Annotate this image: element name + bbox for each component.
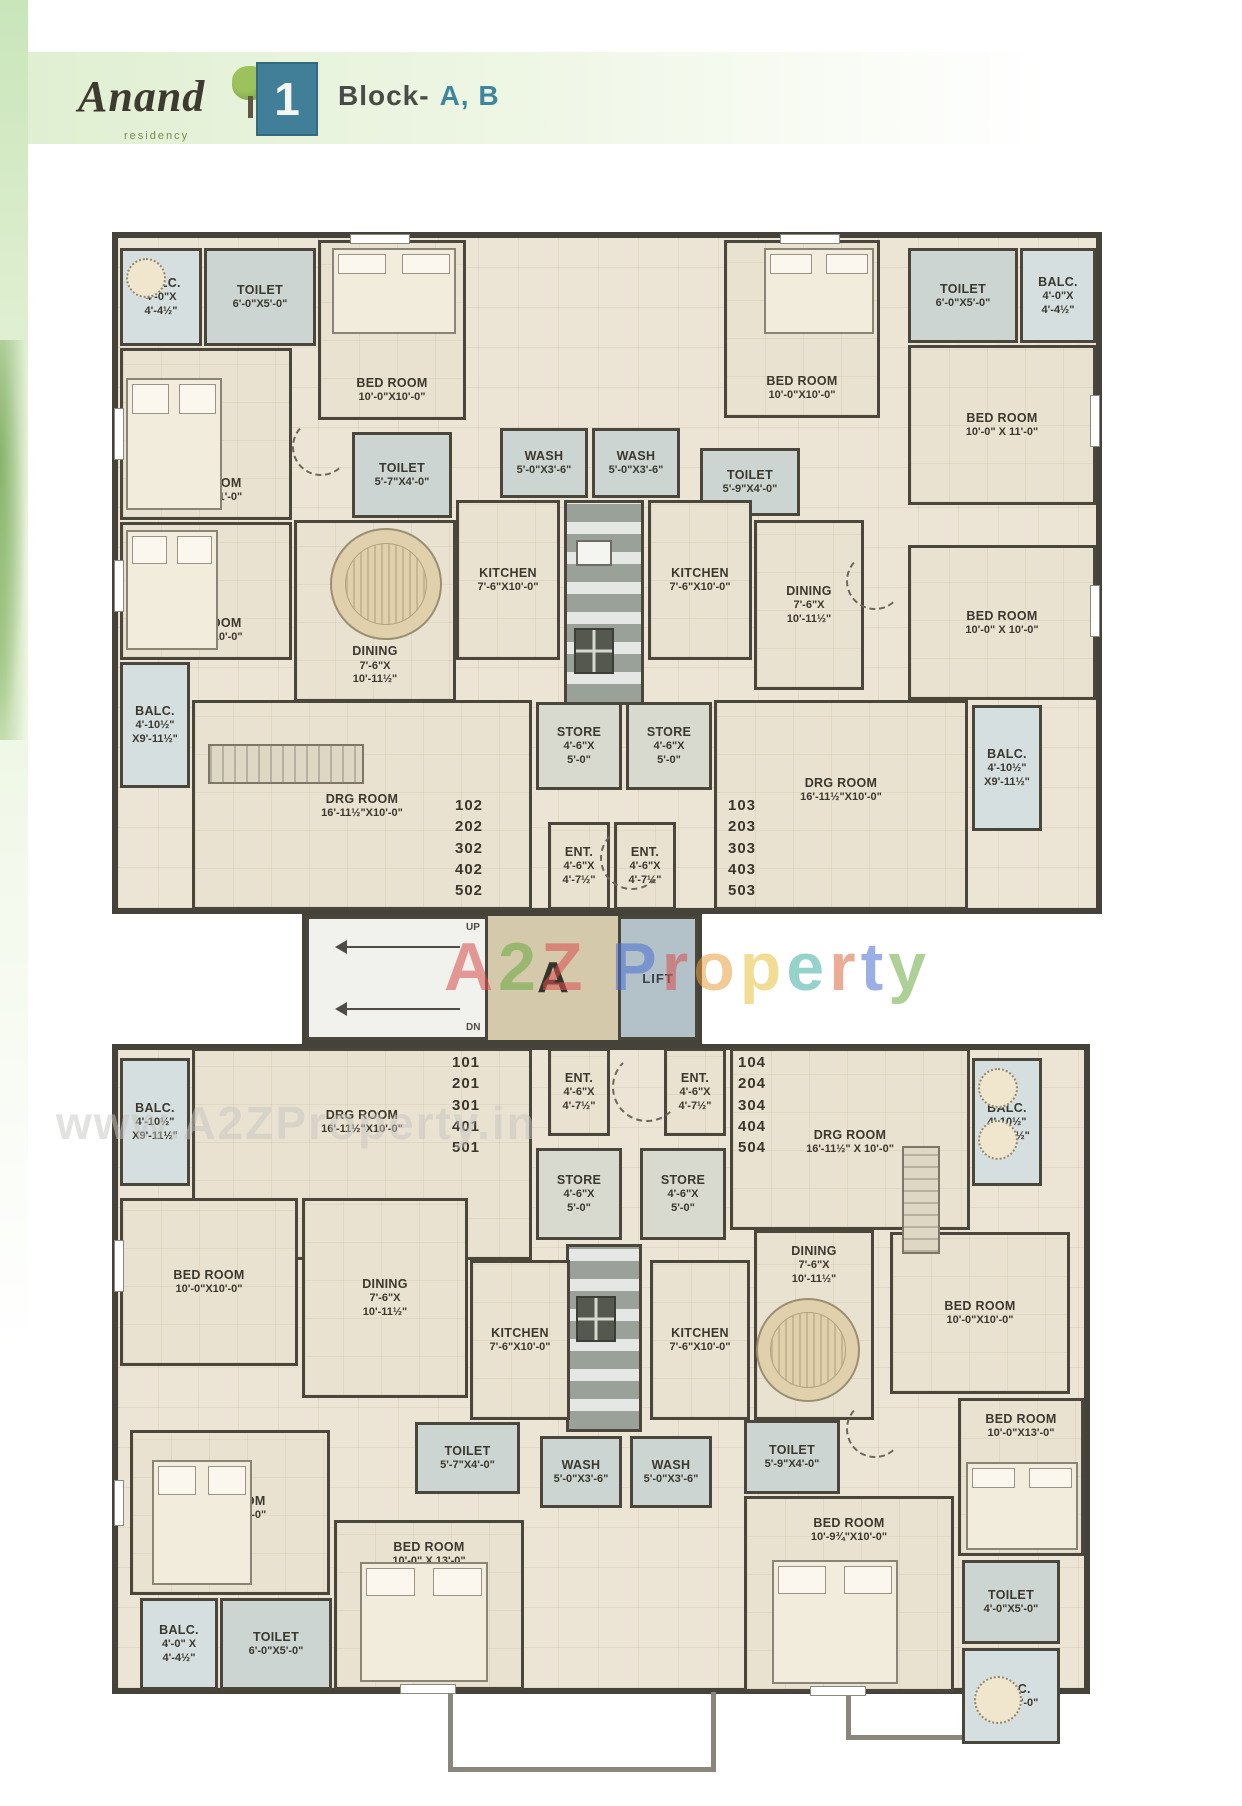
room-label: 7'-6"X10'-0" [670,581,731,595]
room-label: 4'-6"X [563,1188,594,1202]
room-store-right: STORE4'-6"X5'-0" [626,702,712,790]
room-label: STORE [647,724,691,740]
flat-number: 102 [455,795,483,816]
room-balc-left-mid: BALC.4'-10½"X9'-11½" [120,662,190,788]
bed-graphic [966,1462,1078,1550]
room-bedroom-right-upper-lower: BED ROOM10'-0"X10'-0" [890,1232,1070,1394]
room-store-left: STORE4'-6"X5'-0" [536,702,622,790]
room-label: 4'-4½" [145,305,178,319]
room-label: 5'-0" [671,1202,695,1216]
flat-number: 303 [728,838,756,859]
room-toilet-top-left: TOILET6'-0"X5'-0" [204,248,316,346]
room-label: TOILET [727,467,773,483]
room-label: X9'-11½" [132,733,178,747]
room-kitchen-right-lower: KITCHEN7'-6"X10'-0" [650,1260,750,1420]
page-edge-leaf-decoration [0,340,28,740]
room-label: DINING [352,643,398,659]
sofa-v-graphic [902,1146,940,1254]
block-names: A, B [440,80,500,111]
flat-number: 104 [738,1052,766,1073]
bed-graphic [126,530,218,650]
arc-graphic [846,552,904,610]
room-label: TOILET [769,1442,815,1458]
stair-dn-label: DN [466,1022,480,1033]
room-label: DRG ROOM [326,791,399,807]
win-v-graphic [114,1480,124,1526]
room-label: KITCHEN [671,1325,729,1341]
room-label: BALC. [159,1622,199,1638]
room-label: 6'-0"X5'-0" [249,1645,304,1659]
stair-arrow-icon [340,1008,460,1010]
room-label: 7'-6"X10'-0" [670,1341,731,1355]
room-toilet-inner-right-lower: TOILET5'-9"X4'-0" [744,1420,840,1494]
bed-graphic [764,248,874,334]
room-label: 4'-4½" [1042,304,1075,318]
room-label: BED ROOM [173,1267,244,1283]
room-label: 10'-11½" [792,1273,837,1287]
room-label: WASH [562,1457,601,1473]
room-label: TOILET [379,460,425,476]
room-wash-right: WASH5'-0"X3'-6" [592,428,680,498]
arc-graphic [612,1052,682,1122]
stub-graphic [448,1692,716,1772]
sofa-graphic [208,744,364,784]
room-label: STORE [557,1172,601,1188]
room-label: 5'-9"X4'-0" [765,1458,820,1472]
flat-number: 404 [738,1116,766,1137]
room-label: 6'-0"X5'-0" [936,297,991,311]
table-graphic [756,1298,860,1402]
room-label: 4'-10½" [987,762,1026,776]
win-h-graphic [780,234,840,244]
room-label: 10'-11½" [787,613,832,627]
room-label: 10'-0" X 11'-0" [966,426,1039,440]
circle-graphic [978,1120,1018,1160]
room-label: 10'-9¾"X10'-0" [811,1531,887,1545]
room-label: TOILET [444,1443,490,1459]
sheet-number-badge: 1 [256,62,318,136]
room-wash-left: WASH5'-0"X3'-6" [500,428,588,498]
flat-number: 103 [728,795,756,816]
bed-graphic [126,378,222,510]
watermark-letter: t [861,929,889,1005]
stove-graphic [576,1296,616,1342]
room-label: BALC. [1038,274,1078,290]
room-kitchen-left-lower: KITCHEN7'-6"X10'-0" [470,1260,570,1420]
room-label: 5'-0" [567,1202,591,1216]
room-label: DINING [362,1276,408,1292]
room-label: STORE [557,724,601,740]
room-label: 16'-11½"X10'-0" [800,791,882,805]
flat-number: 304 [738,1095,766,1116]
logo-subtitle: residency [124,130,189,142]
room-label: 4'-6"X [563,740,594,754]
room-label: 5'-0"X3'-6" [554,1473,609,1487]
stove-graphic [574,628,614,674]
logo: Anand residency [78,58,268,144]
circle-graphic [126,258,166,298]
room-label: TOILET [940,281,986,297]
watermark-letter: r [662,929,693,1005]
room-label: 5'-7"X4'-0" [375,476,430,490]
flat-number: 402 [455,859,483,880]
room-label: DINING [786,583,832,599]
room-label: DRG ROOM [814,1127,887,1143]
room-kitchen-right: KITCHEN7'-6"X10'-0" [648,500,752,660]
flat-number-stack-flats-103: 103203303403503 [728,795,788,903]
room-label: 10'-11½" [353,673,398,687]
room-toilet-inner-left-lower: TOILET5'-7"X4'-0" [415,1422,520,1494]
room-wash-left-lower: WASH5'-0"X3'-6" [540,1436,622,1508]
flat-number: 502 [455,880,483,901]
win-h-graphic [400,1684,456,1694]
room-ent-left-lower: ENT.4'-6"X4'-7½" [548,1048,610,1136]
room-label: WASH [525,448,564,464]
logo-title: Anand [78,72,205,121]
room-dining-left-lower: DINING7'-6"X10'-11½" [302,1198,468,1398]
flat-number-stack-flats-102: 102202302402502 [455,795,515,903]
shaft-graphic [564,500,644,705]
room-label: 6'-0"X5'-0" [233,298,288,312]
room-label: 7'-6"X [793,599,824,613]
room-label: 7'-6"X10'-0" [478,581,539,595]
room-label: 10'-11½" [363,1306,408,1320]
room-label: TOILET [237,282,283,298]
room-label: BED ROOM [356,375,427,391]
room-label: 4'-6"X [563,860,594,874]
circle-graphic [978,1068,1018,1108]
watermark-center: A2Z Property [444,928,931,1006]
room-label: 7'-6"X [369,1292,400,1306]
room-label: DINING [791,1243,837,1259]
room-label: 7'-6"X10'-0" [490,1341,551,1355]
room-label: BED ROOM [966,410,1037,426]
bed-graphic [772,1560,898,1684]
room-label: WASH [617,448,656,464]
flat-number: 403 [728,859,756,880]
room-label: KITCHEN [671,565,729,581]
room-label: 7'-6"X [798,1259,829,1273]
room-bedroom-right-2: BED ROOM10'-0" X 10'-0" [908,545,1096,700]
flat-number: 101 [452,1052,480,1073]
room-toilet-right-edge: TOILET4'-0"X5'-0" [962,1560,1060,1644]
flat-number: 504 [738,1137,766,1158]
flat-number: 201 [452,1073,480,1094]
room-label: 5'-0"X3'-6" [644,1473,699,1487]
room-label: 4'-7½" [563,874,596,888]
room-label: 5'-0"X3'-6" [609,464,664,478]
win-v-graphic [1090,395,1100,447]
block-title: Block-A, B [338,80,500,112]
room-label: KITCHEN [479,565,537,581]
arc-graphic [846,1400,904,1458]
room-label: STORE [661,1172,705,1188]
room-label: 4'-0"X5'-0" [984,1603,1039,1617]
block-prefix: Block- [338,80,430,111]
bed-graphic [332,248,456,334]
room-label: 16'-11½" X 10'-0" [806,1143,894,1157]
room-label: 4'-6"X [679,1086,710,1100]
room-label: 10'-0"X13'-0" [987,1427,1054,1441]
bed-graphic [360,1562,488,1682]
room-label: 10'-0"X10'-0" [358,391,425,405]
room-label: DRG ROOM [805,775,878,791]
room-wash-right-lower: WASH5'-0"X3'-6" [630,1436,712,1508]
room-label: WASH [652,1457,691,1473]
sink-graphic [576,540,612,566]
room-label: 4'-6"X [563,1086,594,1100]
room-label: 10'-0"X10'-0" [768,389,835,403]
room-label: 4'-4½" [163,1652,196,1666]
room-label: 16'-11½"X10'-0" [321,807,403,821]
win-v-graphic [1090,585,1100,637]
stair-arrow-icon [340,946,460,948]
room-label: 10'-0"X10'-0" [946,1314,1013,1328]
win-h-graphic [350,234,410,244]
room-label: 5'-9"X4'-0" [723,483,778,497]
room-balc-top-right: BALC.4'-0"X4'-4½" [1020,248,1096,343]
room-label: BALC. [987,746,1027,762]
room-label: 10'-0"X10'-0" [175,1283,242,1297]
room-kitchen-left: KITCHEN7'-6"X10'-0" [456,500,560,660]
room-label: KITCHEN [491,1325,549,1341]
room-label: 4'-6"X [667,1188,698,1202]
bed-graphic [152,1460,252,1585]
watermark-letter: 2 [498,929,541,1005]
room-label: TOILET [253,1629,299,1645]
arc-graphic [600,826,664,890]
watermark-letter: e [786,929,829,1005]
table-graphic [330,528,442,640]
room-label: BED ROOM [944,1298,1015,1314]
room-toilet-inner-left: TOILET5'-7"X4'-0" [352,432,452,518]
room-label: 4'-10½" [135,719,174,733]
room-bedroom-left-upper-lower: BED ROOM10'-0"X10'-0" [120,1198,298,1366]
room-label: 4'-0" X [162,1638,196,1652]
room-label: 4'-7½" [679,1100,712,1114]
watermark-letter: p [740,929,787,1005]
room-label: ENT. [565,844,593,860]
room-label: BED ROOM [813,1515,884,1531]
room-label: 5'-0" [567,754,591,768]
room-label: 5'-0"X3'-6" [517,464,572,478]
circle-graphic [974,1676,1022,1724]
room-label: 5'-0" [657,754,681,768]
page-edge-strip [0,0,28,1806]
room-label: 4'-6"X [653,740,684,754]
flat-number: 204 [738,1073,766,1094]
watermark-letter [587,929,611,1005]
room-label: BALC. [135,703,175,719]
watermark-letter: r [829,929,860,1005]
room-toilet-top-right: TOILET6'-0"X5'-0" [908,248,1018,343]
room-label: 4'-7½" [563,1100,596,1114]
room-store-left-lower: STORE4'-6"X5'-0" [536,1148,622,1240]
watermark-letter: Z [541,929,588,1005]
floor-plan-page: { "header": { "logo_title": "Anand", "lo… [0,0,1242,1806]
room-bedroom-right-1: BED ROOM10'-0" X 11'-0" [908,345,1096,505]
room-label: BED ROOM [393,1539,464,1555]
win-h-graphic [810,1686,866,1696]
room-label: BED ROOM [766,373,837,389]
flat-number-stack-flats-104: 104204304404504 [738,1052,798,1160]
flat-number: 302 [455,838,483,859]
flat-number: 202 [455,816,483,837]
room-label: 10'-0" X 10'-0" [965,624,1038,638]
watermark-letter: P [611,929,661,1005]
room-label: ENT. [565,1070,593,1086]
room-label: X9'-11½" [984,776,1030,790]
room-label: 4'-0"X [1042,290,1073,304]
watermark-letter: y [888,929,931,1005]
watermark-letter: A [444,929,498,1005]
room-label: 5'-7"X4'-0" [440,1459,495,1473]
room-label: BED ROOM [966,608,1037,624]
room-label: BED ROOM [985,1411,1056,1427]
flat-number: 203 [728,816,756,837]
room-balc-right-mid: BALC.4'-10½"X9'-11½" [972,705,1042,831]
win-v-graphic [114,408,124,460]
room-balc-bottom-left: BALC.4'-0" X4'-4½" [140,1598,218,1690]
room-store-right-lower: STORE4'-6"X5'-0" [640,1148,726,1240]
room-label: ENT. [681,1070,709,1086]
room-dining-right: DINING7'-6"X10'-11½" [754,520,864,690]
room-toilet-bottom-left: TOILET6'-0"X5'-0" [220,1598,332,1690]
win-v-graphic [114,560,124,612]
watermark-letter: o [693,929,740,1005]
room-label: 7'-6"X [359,660,390,674]
room-label: TOILET [988,1587,1034,1603]
arc-graphic [292,418,350,476]
watermark-bottom: www.A2ZProperty.in [56,1096,537,1150]
win-v-graphic [114,1240,124,1292]
flat-number: 503 [728,880,756,901]
